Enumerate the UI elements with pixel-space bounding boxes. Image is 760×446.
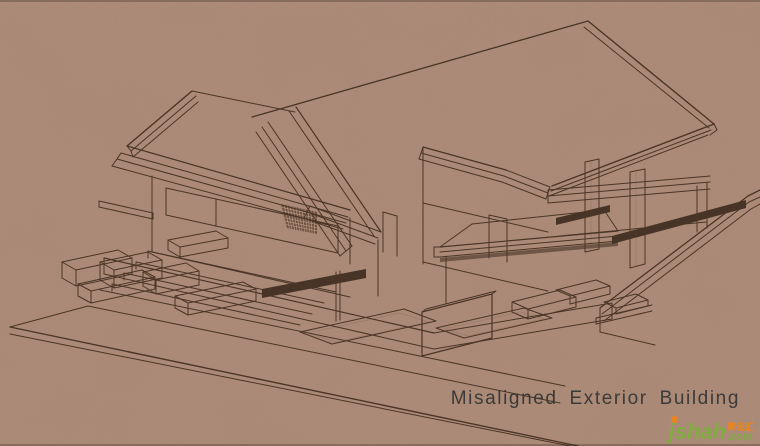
screenshot-root: Misaligned Exterior Building jshah 聚设汇 .… <box>0 0 760 446</box>
watermark: jshah 聚设汇 .com <box>669 421 754 443</box>
drawing-title: Misaligned Exterior Building <box>451 388 740 410</box>
top-edge-strip <box>0 0 760 2</box>
watermark-domain-suffix: .com <box>727 432 753 443</box>
watermark-dot-icon <box>671 416 678 423</box>
architectural-drawing-canvas <box>0 0 760 446</box>
watermark-logo-text: jshah <box>669 419 726 444</box>
paper-texture-grain <box>0 0 760 446</box>
